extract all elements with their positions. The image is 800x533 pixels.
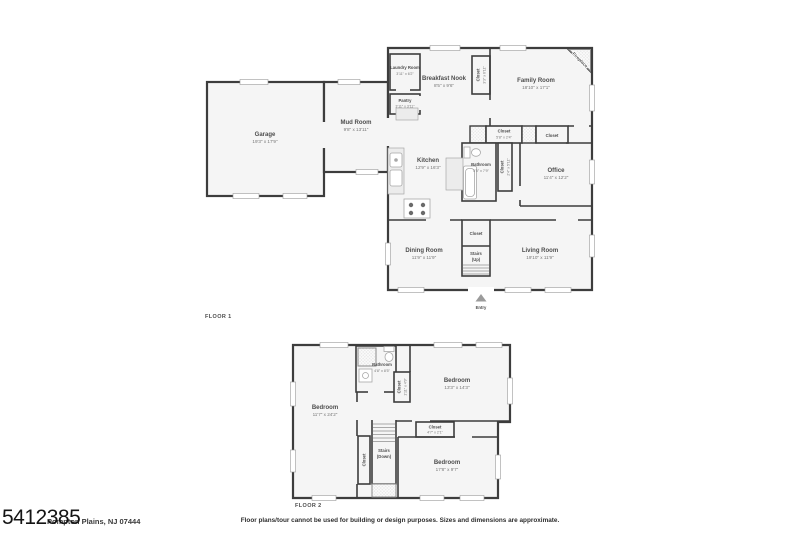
bath-closet-label: Closet [500,160,505,173]
toilet-bowl [472,149,481,157]
office-dims: 11'4" x 12'2" [544,175,569,180]
stairs-label: Stairs [470,251,482,256]
garage-dims: 19'3" x 17'9" [252,139,278,144]
breakfast-nook-dims: 8'5" x 9'6" [434,83,454,88]
mid-closet-label: Closet [429,425,442,430]
mid-closet-dims: 4'7" x 2'1" [427,431,443,435]
dining-room-dims: 11'9" x 11'9" [412,255,437,260]
kitchen-dims: 12'9" x 16'3" [415,165,441,170]
floor1-plan: Garage 19'3" x 17'9" Mud Room 9'8" x 13'… [207,46,595,311]
mudroom-label: Mud Room [341,120,372,126]
dining-room-label: Dining Room [405,248,442,254]
under-stairs-hatch [372,484,396,497]
entry-door-opening [468,287,494,293]
stairs2-label: Stairs [378,448,390,453]
stairs2-direction: (Down) [377,454,392,459]
stair-closet2-label: Closet [362,453,367,466]
toilet2-bowl [385,353,393,362]
sink2 [359,369,372,382]
listing-number: 5412385 [2,506,80,530]
floor1-tag: FLOOR 1 [205,314,232,320]
kitchen-label: Kitchen [417,158,439,164]
bath-closet2-dims: 1'11" x 4'9" [404,378,408,396]
family-room-dims: 18'10" x 17'1" [522,85,550,90]
office-closet-label: Closet [546,133,559,138]
bedroom-right-dims: 13'3" x 14'3" [444,385,470,390]
family-room-label: Family Room [517,78,555,84]
floor-plan-page: Garage 19'3" x 17'9" Mud Room 9'8" x 13'… [0,0,800,533]
bedroom-left-label: Bedroom [312,405,338,411]
mudroom-dims: 9'8" x 13'11" [344,127,369,132]
bathroom1-dims: 5'5" x 7'9" [473,169,489,173]
entry-label: Entry [476,305,487,310]
bath-closet2-label: Closet [397,380,402,393]
pantry-label: Pantry [398,98,412,103]
disclaimer-text: Floor plans/tour cannot be used for buil… [241,517,560,524]
toilet2-tank [384,347,394,352]
stair-closet2-labels: Closet [362,453,367,466]
stairs-direction: (Up) [472,257,481,262]
stair-closet-label: Closet [470,231,483,236]
bedroom-right-label: Bedroom [444,378,470,384]
bathroom2-label: Bathroom [372,362,392,367]
stove [404,199,430,218]
bedroom-bottom-dims: 17'8" x 9'7" [436,467,459,472]
hatched-closet-a [470,126,486,143]
floor2-tag: FLOOR 2 [295,503,322,509]
kitchen-island [446,158,463,190]
entry-arrow-icon [476,294,487,302]
toilet-tank [464,147,470,158]
floor2-plan: Bedroom 11'7" x 24'2" Bathroom 4'8" x 8'… [291,343,513,501]
living-room-dims: 19'10" x 11'9" [526,255,554,260]
bathroom2-dims: 4'8" x 8'5" [374,369,390,373]
floor-plan-drawing: Garage 19'3" x 17'9" Mud Room 9'8" x 13'… [0,0,800,533]
nook-closet-dims: 3'3" x 6'11" [483,66,487,84]
laundry-label: Laundry Room [390,65,420,70]
floor2-walls [293,345,510,498]
living-room-label: Living Room [522,248,558,254]
garage-label: Garage [255,132,276,138]
hall-closet-dims: 5'8" x 2'4" [496,136,512,140]
bathroom1-label: Bathroom [471,162,491,167]
bedroom-left-dims: 11'7" x 24'2" [313,412,338,417]
laundry-dims: 3'11" x 6'2" [396,72,414,76]
nook-closet-label: Closet [476,68,481,81]
bedroom-bottom-label: Bedroom [434,460,460,466]
bath-closet-dims: 2'4" x 5'11" [507,158,511,176]
pantry-dims: 3'11" x 3'11" [395,105,415,109]
office-label: Office [547,168,565,174]
hall-closet-label: Closet [498,129,511,134]
kitchen-cabinet [396,108,418,120]
hatched-closet-b [522,126,536,143]
breakfast-nook-label: Breakfast Nook [422,76,467,82]
